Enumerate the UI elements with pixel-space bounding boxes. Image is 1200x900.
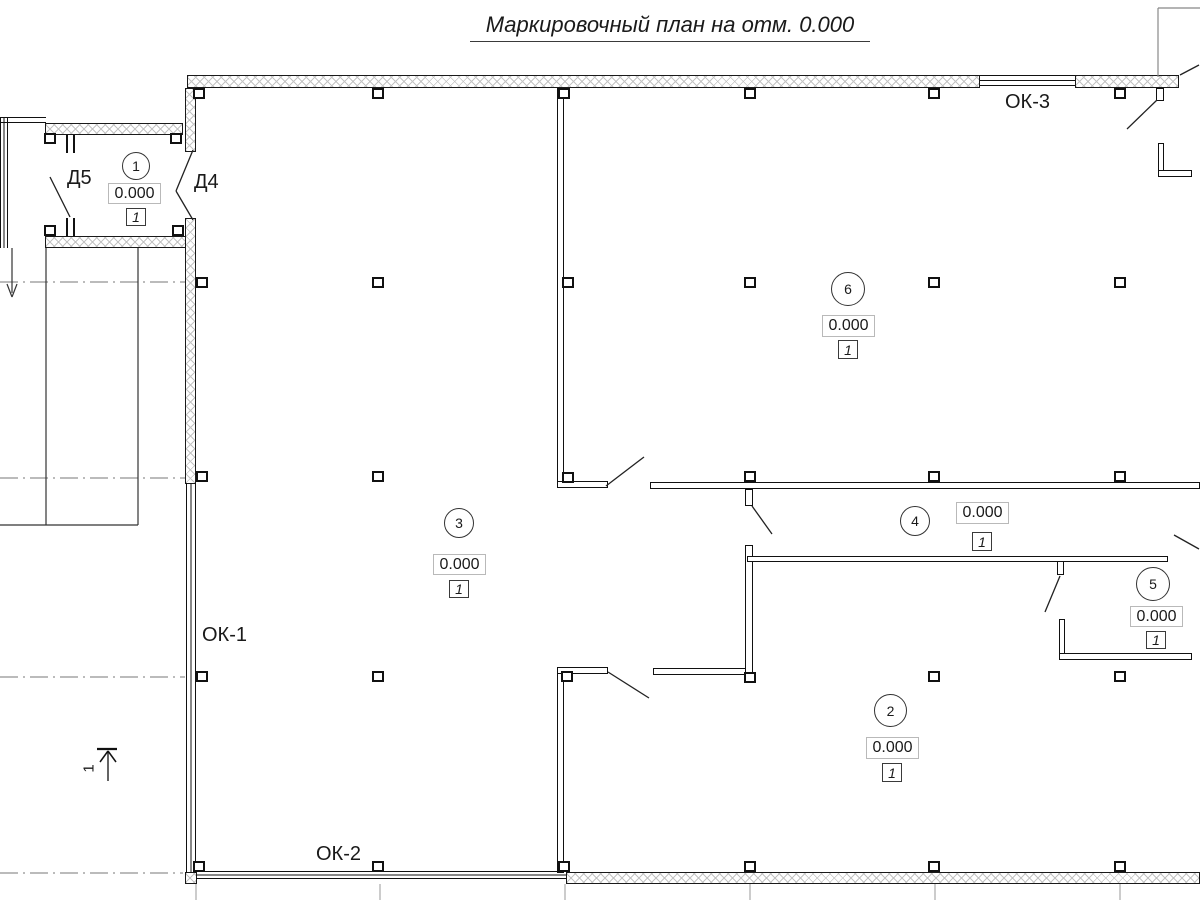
label-window-ok2: ОК-2 bbox=[316, 843, 361, 866]
column-marker bbox=[744, 471, 756, 482]
drawing-title: Маркировочный план на отм. 0.000 bbox=[470, 12, 870, 42]
room2-finish-box: 1 bbox=[882, 763, 902, 782]
window-ok2 bbox=[196, 871, 566, 879]
column-marker bbox=[372, 671, 384, 682]
room4-number-circle: 4 bbox=[900, 506, 930, 536]
column-marker bbox=[372, 88, 384, 99]
wall-a-room6-room4 bbox=[650, 482, 1200, 489]
column-marker bbox=[372, 277, 384, 288]
label-window-ok1: ОК-1 bbox=[202, 624, 247, 647]
section-mark-number: 1 bbox=[81, 764, 98, 772]
door-swing-d4-lower bbox=[176, 191, 193, 220]
wall-central-lower bbox=[557, 673, 564, 873]
room2-number-circle: 2 bbox=[874, 694, 907, 727]
column-marker bbox=[193, 861, 205, 872]
room4-finish-box: 1 bbox=[972, 532, 992, 551]
direction-arrow-wing-l bbox=[7, 284, 12, 297]
column-marker bbox=[744, 88, 756, 99]
door-swing-topright bbox=[1127, 100, 1157, 129]
room5-elevation-box: 0.000 bbox=[1130, 606, 1183, 627]
room6-elevation-box: 0.000 bbox=[822, 315, 875, 337]
floor-plan-canvas: Маркировочный план на отм. 0.000 bbox=[0, 0, 1200, 900]
column-marker bbox=[561, 671, 573, 682]
annex-left-wall bbox=[0, 118, 8, 248]
door-swing-central-lower bbox=[608, 672, 649, 698]
wall-top-left-segment bbox=[187, 75, 980, 88]
window-ok3 bbox=[980, 75, 1075, 86]
column-marker bbox=[1114, 88, 1126, 99]
column-marker bbox=[44, 133, 56, 144]
column-marker bbox=[1114, 471, 1126, 482]
room6-finish-box: 1 bbox=[838, 340, 858, 359]
door-swing-room5 bbox=[1045, 576, 1060, 612]
column-marker bbox=[928, 861, 940, 872]
column-marker bbox=[196, 671, 208, 682]
section-arrow-head-r bbox=[108, 751, 116, 762]
room3-number-circle: 3 bbox=[444, 508, 474, 538]
column-marker bbox=[928, 88, 940, 99]
room6-number-circle: 6 bbox=[831, 272, 865, 306]
column-marker bbox=[744, 861, 756, 872]
column-marker bbox=[196, 471, 208, 482]
annex-wall-bottom-band bbox=[45, 236, 186, 248]
door-swing-topright-corner bbox=[1180, 65, 1199, 75]
door-swing-room2-left bbox=[752, 506, 772, 534]
annex-wall-top-band bbox=[45, 123, 183, 135]
column-marker bbox=[170, 133, 182, 144]
column-marker bbox=[928, 671, 940, 682]
column-marker bbox=[562, 472, 574, 483]
column-marker bbox=[372, 471, 384, 482]
room5-finish-box: 1 bbox=[1146, 631, 1166, 649]
wall-bottom bbox=[566, 872, 1200, 884]
direction-arrow-wing-r bbox=[12, 284, 17, 297]
door-d5-jamb-top bbox=[66, 135, 75, 153]
room3-finish-box: 1 bbox=[449, 580, 469, 598]
column-marker bbox=[744, 672, 756, 683]
section-arrow-head-l bbox=[100, 751, 108, 762]
wall-b-room4-room2 bbox=[747, 556, 1168, 562]
column-marker bbox=[196, 277, 208, 288]
column-marker bbox=[1114, 861, 1126, 872]
label-window-ok3: ОК-3 bbox=[1005, 91, 1050, 114]
room5-number-circle: 5 bbox=[1136, 567, 1170, 601]
wall-left-middle bbox=[185, 218, 196, 484]
door-swing-d4-upper bbox=[176, 150, 193, 191]
topright-l-wall-horizontal bbox=[1158, 170, 1192, 177]
column-marker bbox=[928, 277, 940, 288]
room5-door-jamb bbox=[1057, 561, 1064, 575]
door-swing-central-upper bbox=[606, 457, 644, 486]
window-ok1 bbox=[186, 483, 196, 873]
annex-top-edge-line bbox=[0, 117, 46, 123]
wall-room2-left-stub bbox=[745, 489, 753, 506]
wall-room2-bottom-left bbox=[653, 668, 753, 675]
wall-room2-left-vertical bbox=[745, 545, 753, 676]
room4-elevation-box: 0.000 bbox=[956, 502, 1009, 524]
column-marker bbox=[172, 225, 184, 236]
column-marker bbox=[1114, 671, 1126, 682]
room1-finish-box: 1 bbox=[126, 208, 146, 226]
column-marker bbox=[928, 471, 940, 482]
column-marker bbox=[744, 277, 756, 288]
label-door-d4: Д4 bbox=[194, 171, 219, 194]
column-marker bbox=[1114, 277, 1126, 288]
column-marker bbox=[44, 225, 56, 236]
column-marker bbox=[372, 861, 384, 872]
column-marker bbox=[558, 861, 570, 872]
wall-top-right-segment bbox=[1075, 75, 1179, 88]
column-marker bbox=[193, 88, 205, 99]
room2-elevation-box: 0.000 bbox=[866, 737, 919, 759]
door-d5-jamb-bottom bbox=[66, 218, 75, 236]
room5-l-wall-horizontal bbox=[1059, 653, 1192, 660]
room3-elevation-box: 0.000 bbox=[433, 554, 486, 575]
column-marker bbox=[558, 88, 570, 99]
room1-number-circle: 1 bbox=[122, 152, 150, 180]
door-swing-wall-a-right bbox=[1174, 535, 1199, 549]
topright-door-jamb bbox=[1156, 88, 1164, 101]
room1-elevation-box: 0.000 bbox=[108, 183, 161, 204]
column-marker bbox=[562, 277, 574, 288]
label-door-d5: Д5 bbox=[67, 167, 92, 190]
